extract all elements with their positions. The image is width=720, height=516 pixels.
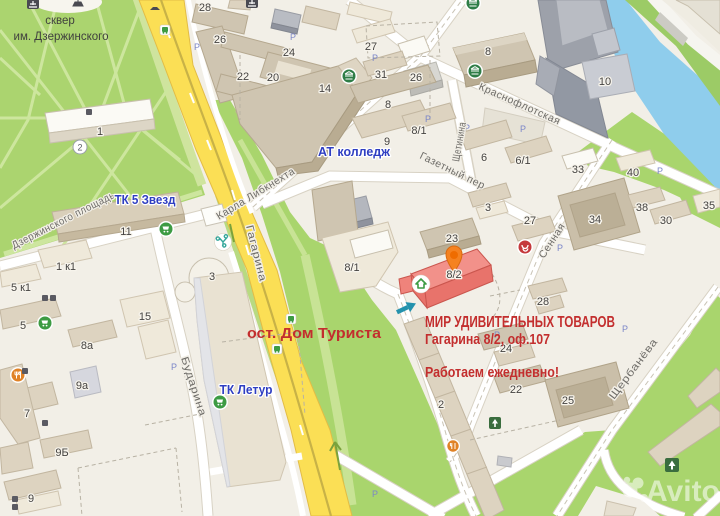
svg-text:Работаем ежедневно!: Работаем ежедневно! (425, 365, 559, 381)
svg-text:сквер: сквер (45, 15, 75, 27)
svg-text:20: 20 (267, 72, 279, 84)
svg-text:8/1: 8/1 (344, 262, 359, 274)
svg-text:28: 28 (537, 296, 549, 308)
svg-text:P: P (425, 114, 431, 124)
svg-text:ТК 5 Звезд: ТК 5 Звезд (115, 192, 177, 207)
svg-text:АТ колледж: АТ колледж (318, 144, 391, 159)
svg-text:14: 14 (319, 83, 331, 95)
svg-text:P: P (520, 124, 526, 134)
svg-text:8: 8 (385, 99, 391, 111)
svg-text:6: 6 (481, 152, 487, 164)
svg-text:22: 22 (237, 71, 249, 83)
svg-text:15: 15 (139, 311, 151, 323)
svg-text:P: P (622, 324, 628, 334)
svg-text:22: 22 (510, 384, 522, 396)
svg-text:2: 2 (438, 399, 444, 411)
svg-text:6/1: 6/1 (515, 155, 530, 167)
svg-text:3: 3 (209, 271, 215, 283)
svg-text:P: P (372, 53, 378, 63)
svg-text:31: 31 (375, 69, 387, 81)
svg-text:25: 25 (562, 395, 574, 407)
svg-text:5: 5 (20, 320, 26, 332)
svg-text:ТК Летур: ТК Летур (220, 382, 273, 397)
svg-text:P: P (657, 166, 663, 176)
svg-text:МИР УДИВИТЕЛЬНЫХ ТОВАРОВ: МИР УДИВИТЕЛЬНЫХ ТОВАРОВ (425, 314, 615, 331)
svg-text:35: 35 (703, 200, 715, 212)
svg-text:7: 7 (24, 408, 30, 420)
svg-text:9а: 9а (76, 380, 89, 392)
svg-text:P: P (194, 42, 200, 52)
svg-text:11: 11 (120, 226, 131, 238)
svg-text:8/1: 8/1 (411, 125, 426, 137)
svg-text:26: 26 (410, 72, 422, 84)
svg-text:P: P (557, 243, 563, 253)
svg-text:Avito: Avito (646, 475, 720, 508)
svg-text:9Б: 9Б (55, 447, 68, 459)
svg-text:8/2: 8/2 (446, 269, 461, 281)
svg-text:P: P (372, 489, 378, 499)
svg-text:ост. Дом Туриста: ост. Дом Туриста (247, 325, 382, 342)
svg-text:27: 27 (524, 215, 536, 227)
svg-text:2: 2 (77, 143, 82, 153)
svg-text:34: 34 (589, 214, 601, 226)
svg-text:10: 10 (599, 76, 611, 88)
svg-text:28: 28 (199, 2, 211, 14)
svg-text:23: 23 (446, 233, 458, 245)
svg-text:38: 38 (636, 202, 648, 214)
svg-text:24: 24 (283, 47, 295, 59)
svg-text:1 к1: 1 к1 (56, 261, 76, 273)
svg-text:8: 8 (485, 46, 491, 58)
svg-text:им. Дзержинского: им. Дзержинского (14, 31, 109, 43)
svg-text:9: 9 (28, 493, 34, 505)
svg-text:3: 3 (485, 202, 491, 214)
svg-text:1: 1 (97, 126, 103, 138)
svg-text:40: 40 (627, 167, 639, 179)
svg-text:8а: 8а (81, 340, 94, 352)
svg-text:Гагарина 8/2, оф.107: Гагарина 8/2, оф.107 (425, 332, 550, 348)
svg-text:26: 26 (214, 34, 226, 46)
svg-text:P: P (290, 32, 296, 42)
svg-text:27: 27 (365, 41, 377, 53)
svg-text:30: 30 (660, 215, 672, 227)
svg-text:5 к1: 5 к1 (11, 282, 31, 294)
svg-text:33: 33 (572, 164, 584, 176)
svg-text:P: P (171, 362, 177, 372)
